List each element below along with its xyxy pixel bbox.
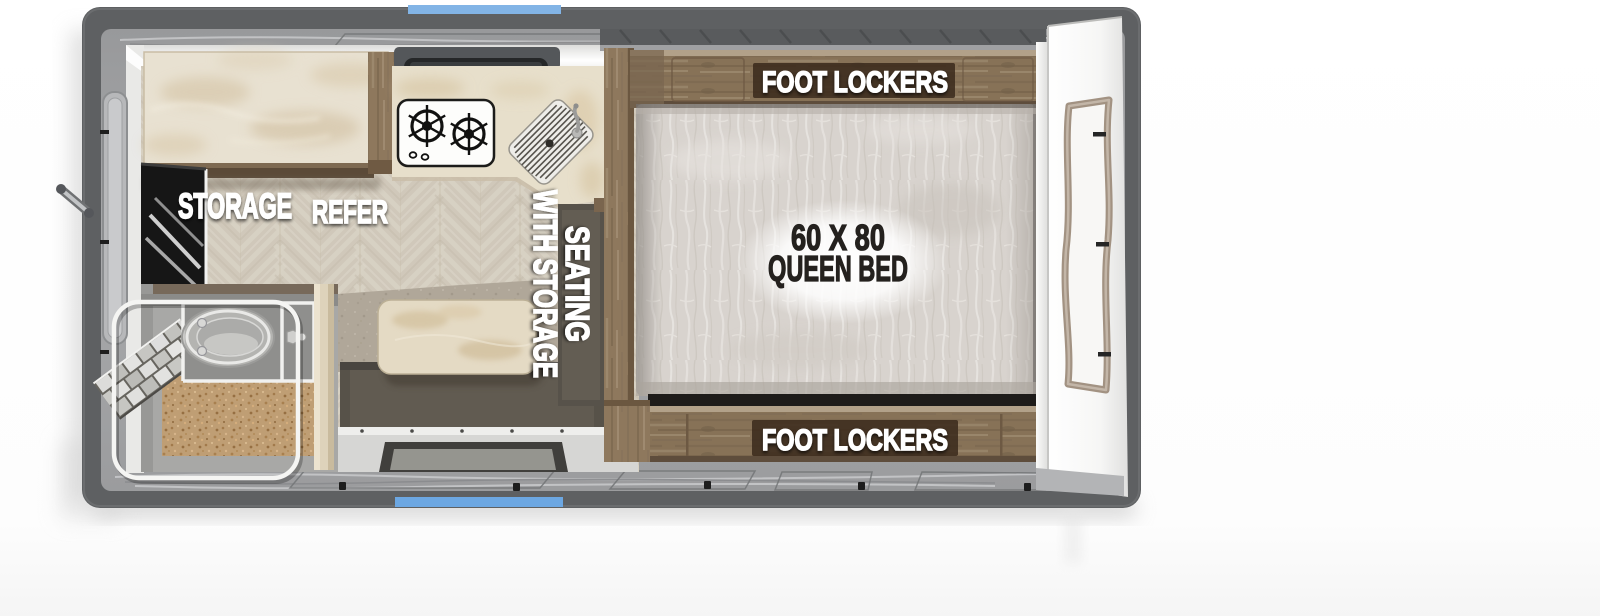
svg-text:STORAGE: STORAGE: [178, 187, 292, 226]
svg-text:WITH STORAGE: WITH STORAGE: [527, 190, 564, 378]
svg-text:FOOT LOCKERS: FOOT LOCKERS: [762, 66, 948, 99]
svg-text:FOOT LOCKERS: FOOT LOCKERS: [762, 424, 948, 457]
svg-text:REFER: REFER: [312, 194, 388, 230]
svg-text:QUEEN BED: QUEEN BED: [768, 248, 908, 289]
